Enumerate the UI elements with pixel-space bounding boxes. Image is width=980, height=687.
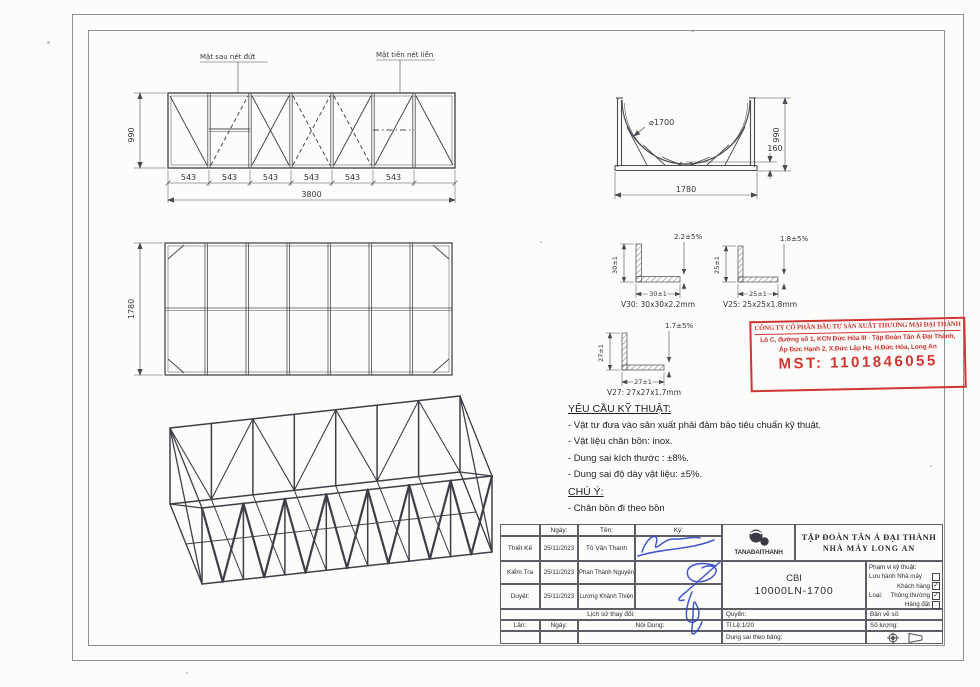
note-item: - Chân bồn đi theo bồn xyxy=(568,501,878,518)
factory-name: NHÀ MÁY LONG AN xyxy=(823,543,915,555)
dimension-lines xyxy=(726,244,784,294)
scan-speck xyxy=(930,465,932,467)
front-view-front-label: Mặt tiền nét liền xyxy=(376,51,433,59)
extension-lines xyxy=(615,98,791,199)
dim-543: 543 xyxy=(345,173,360,182)
company-name-cell: TẬP ĐOÀN TÂN Á ĐẠI THÀNH NHÀ MÁY LONG AN xyxy=(795,524,943,561)
approval-role: Thiết Kế xyxy=(500,536,540,561)
dim-543: 543 xyxy=(222,173,237,182)
field-ban-ve-so: Bản vẽ số: xyxy=(866,609,943,620)
dim-depth-1780: 1780 xyxy=(127,299,136,319)
scan-speck xyxy=(691,30,694,32)
dim-543: 543 xyxy=(304,173,319,182)
scan-speck xyxy=(186,672,188,674)
signature-duyet xyxy=(686,592,702,634)
approval-name: Tô Văn Thanh xyxy=(578,536,635,561)
approval-name: Phan Thành Nguyên xyxy=(578,561,635,584)
front-view-back-label: Mặt sau nét đứt xyxy=(200,53,255,61)
approval-date: 25/11/2023 xyxy=(540,584,578,609)
scan-speck xyxy=(47,41,50,44)
dimension-lines xyxy=(610,331,669,382)
tech-req-title: YÊU CẦU KỸ THUẬT: xyxy=(568,401,878,418)
angle-caption: V30: 30x30x2.2mm xyxy=(621,300,695,309)
drawing-code-line2: 10000LN-1700 xyxy=(754,585,833,598)
dim-height-990: 990 xyxy=(127,127,136,142)
plan-view: 1780 xyxy=(128,232,468,392)
projection-symbol-cell xyxy=(866,631,943,644)
stamp-tax-id: MST: 1101846055 xyxy=(755,352,961,373)
dim-total-3800: 3800 xyxy=(301,190,321,199)
dim-width-1780: 1780 xyxy=(676,185,696,194)
first-angle-projection-icon xyxy=(884,632,926,644)
dim-leg-vertical: 30±1 xyxy=(611,256,619,274)
tech-req-item: - Dung sai độ dày vật liệu: ±5%. xyxy=(568,467,878,484)
signature-kiem-tra xyxy=(679,562,720,601)
frame-bracing xyxy=(170,96,453,165)
label-leaders xyxy=(200,60,435,93)
technical-requirements: YÊU CẦU KỸ THUẬT: - Vật tư đưa vào sản x… xyxy=(568,401,878,517)
dim-leg-horizontal: 30±1 xyxy=(649,290,667,298)
scope-loai-label: Loại: xyxy=(869,591,882,600)
angle-detail-v27: 27±1 27±1 1.7±5% V27: 27x27x1.7mm xyxy=(592,318,707,398)
scope-cell: Phạm vi kỹ thuật: Lưu hành Nhà máy Khách… xyxy=(866,561,943,609)
scope-option-label: Lưu hành Nhà máy xyxy=(869,572,930,581)
scope-option-label: Khách hàng xyxy=(869,582,930,591)
plan-ribs xyxy=(165,243,452,375)
col-header-date: Ngày: xyxy=(540,524,578,536)
field-so-luong: Số lượng: xyxy=(866,620,943,631)
approval-name: Lương Khánh Thiện xyxy=(578,584,635,609)
checkbox-hang-dat xyxy=(932,601,940,609)
front-elevation-view: Mặt sau nét đứt Mặt tiền nét liền 543 54… xyxy=(128,40,468,215)
note-title: CHÚ Ý: xyxy=(568,484,878,501)
company-name: TẬP ĐOÀN TÂN Á ĐẠI THÀNH xyxy=(802,531,937,543)
isometric-view xyxy=(130,378,510,593)
dimension-lines xyxy=(615,98,785,195)
dim-offset-160: 160 xyxy=(767,144,782,153)
tech-req-item: - Vật liệu chân bồn: inox. xyxy=(568,434,878,451)
corner-braces xyxy=(168,245,449,373)
scan-speck xyxy=(540,241,542,243)
checkbox-thong-thuong: ✓ xyxy=(932,592,940,600)
dimension-lines xyxy=(140,93,458,200)
dim-leg-vertical: 27±1 xyxy=(597,344,605,362)
rev-col-lan: Lần: xyxy=(500,620,540,631)
rev-empty-cell xyxy=(540,631,578,644)
rev-empty-cell xyxy=(500,631,540,644)
angle-caption: V25: 25x25x1.8mm xyxy=(723,300,797,309)
dim-leg-horizontal: 25±1 xyxy=(749,290,767,298)
extension-lines xyxy=(134,243,163,375)
cradle-end-view: ⌀1700 990 160 1780 xyxy=(585,75,815,220)
dimension-lines xyxy=(624,242,684,294)
tech-req-item: - Dung sai kích thước : ±8%. xyxy=(568,451,878,468)
drawing-code-line1: CBI xyxy=(786,572,802,585)
dim-543: 543 xyxy=(181,173,196,182)
approval-date: 25/11/2023 xyxy=(540,561,578,584)
rev-col-ngay: Ngày: xyxy=(540,620,578,631)
dim-543: 543 xyxy=(386,173,401,182)
tech-req-item: - Vật tư đưa vào sản xuất phải đảm bảo t… xyxy=(568,418,878,435)
angle-detail-v30: 30±1 30±1 2.2±5% V30: 30x30x2.2mm xyxy=(606,230,721,310)
dim-leg-horizontal: 27±1 xyxy=(634,378,652,386)
col-header-name: Tên: xyxy=(578,524,635,536)
title-block-cell xyxy=(500,524,540,536)
dim-diameter-1700: ⌀1700 xyxy=(649,118,674,127)
cradle-struts xyxy=(627,127,745,165)
iso-end-faces xyxy=(170,396,492,584)
approval-date: 25/11/2023 xyxy=(540,536,578,561)
scope-option-label: Thông thường xyxy=(882,591,930,600)
angle-caption: V27: 27x27x1.7mm xyxy=(607,388,681,397)
dim-leg-vertical: 25±1 xyxy=(713,256,721,274)
checkbox-luu-hanh xyxy=(932,573,940,581)
drawing-sheet: Mặt sau nét đứt Mặt tiền nét liền 543 54… xyxy=(0,0,980,687)
dim-thickness: 2.2±5% xyxy=(674,233,702,241)
signature-thiet-ke xyxy=(638,536,714,556)
approval-role: Duyệt: xyxy=(500,584,540,609)
dim-543: 543 xyxy=(263,173,278,182)
frame-posts xyxy=(208,93,415,168)
dim-thickness: 1.8±5% xyxy=(780,235,808,243)
dim-thickness: 1.7±5% xyxy=(665,322,693,330)
signatures-overlay xyxy=(628,526,758,641)
scope-title: Phạm vi kỹ thuật: xyxy=(869,563,940,572)
checkbox-khach-hang: ✓ xyxy=(932,582,940,590)
extension-lines xyxy=(134,93,455,203)
angle-detail-v25: 25±1 25±1 1.8±5% V25: 25x25x1.8mm xyxy=(708,230,823,310)
company-stamp: CÔNG TY CỔ PHẦN ĐẦU TƯ SẢN XUẤT THƯƠNG M… xyxy=(749,317,966,393)
approval-role: Kiểm Tra xyxy=(500,561,540,584)
dim-height-990: 990 xyxy=(772,127,781,142)
